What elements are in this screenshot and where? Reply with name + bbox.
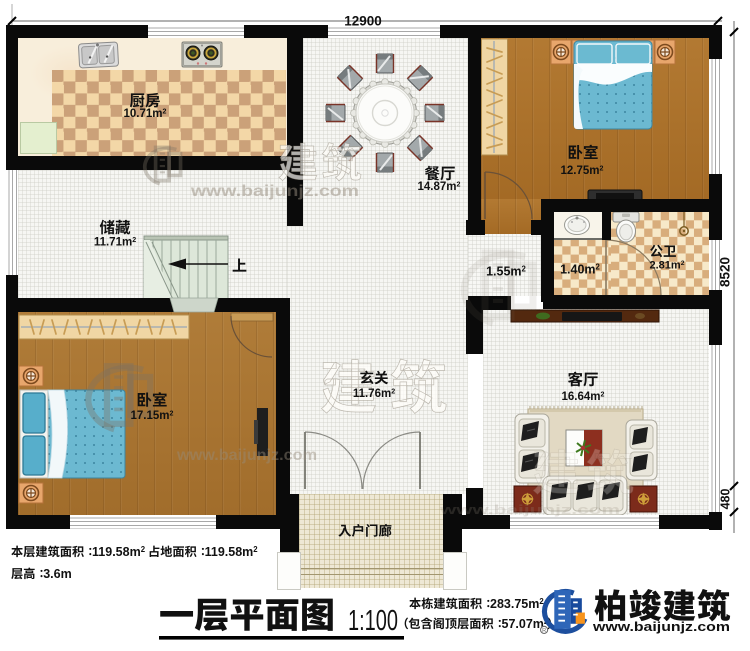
svg-text:www.baijunjz.com: www.baijunjz.com [592,619,730,634]
svg-text:3.6m: 3.6m [43,567,71,581]
svg-text:1.40m2: 1.40m2 [560,263,600,277]
svg-text:www.baijunjz.com: www.baijunjz.com [438,502,620,517]
svg-text:1.55m2: 1.55m2 [486,265,526,279]
svg-text:12900: 12900 [344,14,382,29]
svg-text:283.75m2: 283.75m2 [490,597,544,611]
svg-text:11.71m2: 11.71m2 [94,236,136,249]
svg-text:R: R [542,628,546,634]
svg-text:10.71m2: 10.71m2 [124,107,167,120]
svg-text:14.87m2: 14.87m2 [418,180,461,193]
svg-text:11.76m2: 11.76m2 [353,387,395,400]
svg-text:17.15m2: 17.15m2 [131,409,174,422]
svg-text:119.58m2: 119.58m2 [92,545,146,559]
svg-text:119.58m2: 119.58m2 [205,545,259,559]
svg-text:2.81m2: 2.81m2 [650,260,685,272]
svg-text:www.baijunjz.com: www.baijunjz.com [176,447,317,464]
svg-text:12.75m2: 12.75m2 [561,164,604,177]
svg-text:8520: 8520 [718,257,733,287]
svg-text:www.baijunjz.com: www.baijunjz.com [190,183,359,200]
svg-text:480: 480 [719,489,733,510]
svg-text:1:100: 1:100 [348,605,398,637]
svg-text:16.64m2: 16.64m2 [562,390,605,403]
